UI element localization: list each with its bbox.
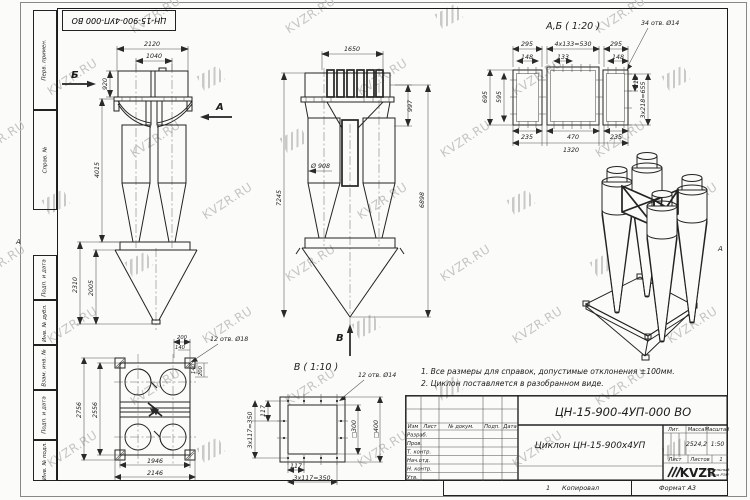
stamp-label: Инв. № дубл. [42, 304, 48, 342]
stamp-podp-data-2: Подп. и дата [33, 390, 57, 440]
view-plan: 2756 2556 1946 2146 200 140 140 200 12 о… [70, 326, 266, 498]
dim-side-920: 920 [102, 78, 109, 90]
dim-ab-3x218: 3x218=655 [640, 81, 647, 118]
dim-ab-133: 133 [557, 54, 569, 61]
dim-ab-148l: 148 [521, 54, 533, 61]
stamp-label: Взам. инв. № [42, 349, 48, 386]
dim-ab-4x133: 4x133=530 [554, 41, 591, 48]
bottom-strip-divider [631, 481, 632, 495]
tb-company-line2: завод РЭП [707, 472, 728, 477]
tb-doc-number: ЦН-15-900-4УП-000 ВО [555, 405, 691, 419]
title-block: Изм Лист № докум. Подп. Дата Разраб. Про… [405, 395, 728, 481]
dim-front-dia908: Ø 908 [310, 162, 330, 170]
tb-scale-value: 1:50 [711, 441, 725, 448]
note-ab-holes: 34 отв. Ø14 [641, 19, 679, 27]
tb-part-name: Циклон ЦН-15-900х4УП [535, 441, 646, 451]
dim-plan-140t: 140 [175, 345, 186, 351]
tb-sheet-label: Лист [667, 457, 682, 463]
dim-ab-295l: 295 [521, 41, 533, 48]
dim-side-2120: 2120 [144, 41, 160, 48]
dim-ab-595: 595 [496, 91, 503, 103]
side-view-labels: Б А [62, 70, 232, 120]
plan-geometry [115, 358, 195, 460]
dim-v-sq300: □300 [351, 420, 358, 438]
tb-mass-value: 2524,2 [686, 441, 707, 448]
iso-cyclone-front [647, 191, 677, 343]
stamp-label: Справ. № [42, 147, 48, 174]
note-v-holes: 12 отв. Ø14 [358, 371, 396, 379]
stamp-label: Перв. примен. [42, 39, 48, 80]
dim-side-1040: 1040 [146, 53, 162, 60]
tb-col-data: Дата [502, 424, 516, 430]
tb-scale-label: Масштаб [705, 427, 730, 433]
view-detail-v: В ( 1:10 ) 117 3x117=350 117 3x117=350 □… [246, 350, 418, 498]
dim-front-7245: 7245 [276, 190, 283, 206]
side-centerlines [136, 64, 172, 330]
tb-sheets-label: Листов [689, 457, 709, 463]
stamp-label: Подп. и дата [42, 396, 48, 433]
tb-sheets-value: 1 [719, 457, 722, 463]
copied-number: 1 [546, 484, 550, 492]
view-side: 2120 1040 920 4015 2310 2005 Б А [56, 36, 312, 336]
format-label: Формат А3 [659, 484, 696, 492]
tb-lit-label: Лит. [667, 427, 680, 433]
label-v: В [336, 333, 344, 344]
dim-plan-2756: 2756 [76, 402, 83, 418]
note-line-1: 1. Все размеры для справок, допустимые о… [421, 366, 727, 378]
stamp-vzam-inv: Взам. инв. № [33, 345, 57, 390]
dim-front-6898: 6898 [419, 192, 426, 208]
dim-front-1650: 1650 [344, 46, 360, 53]
dim-side-2310: 2310 [72, 277, 79, 293]
note-line-2: 2. Циклон поставляется в разобранном вид… [421, 378, 727, 390]
side-geometry [114, 68, 197, 324]
stamp-inv-dubl: Инв. № дубл. [33, 300, 57, 345]
dim-v-350b: 3x117=350 [293, 475, 330, 482]
dim-ab-695: 695 [482, 91, 489, 103]
tb-col-docum: № докум. [447, 424, 474, 430]
dim-v-350l: 3x117=350 [247, 411, 254, 448]
detail-v-title: В ( 1:10 ) [294, 362, 338, 373]
detail-ab-title: А,Б ( 1:20 ) [545, 21, 600, 32]
dim-ab-235l: 235 [521, 134, 533, 141]
dim-plan-1946: 1946 [147, 458, 163, 465]
stamp-perv-primen: Перв. примен. [33, 10, 57, 110]
dim-ab-148r: 148 [612, 54, 624, 61]
technical-notes: 1. Все размеры для справок, допустимые о… [421, 366, 727, 390]
dim-v-117l: 117 [260, 405, 267, 417]
stamp-inv-podl: Инв. № подл. [33, 440, 57, 481]
dim-front-997: 997 [407, 100, 414, 112]
dim-plan-200t: 200 [177, 335, 188, 341]
ab-geometry [510, 64, 632, 129]
dim-v-sq400: □400 [373, 420, 380, 438]
tb-row-prov: Пров. [407, 441, 422, 447]
stamp-label: Инв. № подл. [42, 442, 48, 480]
iso-cyclone-right [677, 175, 707, 324]
dim-plan-2146: 2146 [147, 470, 163, 477]
label-b: Б [71, 70, 79, 81]
dim-ab-295r: 295 [610, 41, 622, 48]
view-front: 1650 997 6898 7245 Ø 908 В [276, 40, 458, 370]
tb-row-razrab: Разраб. [407, 433, 427, 439]
stamp-podp-data-1: Подп. и дата [33, 255, 57, 300]
stamp-sprav-no: Справ. № [33, 110, 57, 210]
v-dimensions: 117 3x117=350 117 3x117=350 □300 □400 12… [247, 371, 396, 485]
doc-number-top-stamp: ЦН-15-900-4УП-000 ВО [62, 10, 176, 31]
view-isometric [550, 136, 742, 368]
tb-row-nachotd: Нач.отд. [407, 458, 430, 464]
front-centerlines [324, 68, 379, 332]
stamp-label: Подп. и дата [42, 259, 48, 296]
drawing-sheet: { "watermark": {"text": "KVZR.RU"}, "fra… [0, 0, 750, 500]
dim-plan-140r: 140 [191, 363, 197, 374]
tb-col-podp: Подп. [484, 424, 500, 430]
tb-row-utv: Утв. [407, 475, 418, 481]
dim-plan-200r: 200 [198, 365, 204, 376]
iso-base [583, 274, 697, 360]
note-plan-holes: 12 отв. Ø18 [210, 335, 248, 343]
v-geometry [277, 394, 348, 465]
copied-label: Копировал [562, 484, 599, 492]
tb-mass-label: Масса [688, 427, 705, 433]
tb-col-izm: Изм [408, 424, 419, 430]
bottom-strip: 1 Копировал Формат А3 [443, 481, 728, 496]
tb-row-tkontr: Т. контр. [407, 450, 431, 456]
dim-side-2005: 2005 [88, 280, 95, 296]
dim-ab-218: 218 [633, 76, 640, 88]
zone-mark-left: А [16, 238, 21, 246]
tb-row-nkontr: Н. контр. [407, 467, 432, 473]
ab-dimensions: 295 4x133=530 295 148 133 148 695 595 21… [482, 19, 679, 154]
dim-plan-2556: 2556 [92, 402, 99, 418]
tb-col-list: Лист [422, 424, 437, 430]
dim-side-4015: 4015 [94, 162, 101, 178]
doc-number-top-text: ЦН-15-900-4УП-000 ВО [72, 16, 167, 25]
title-block-texts: Изм Лист № докум. Подп. Дата Разраб. Про… [407, 405, 730, 481]
label-a: А [215, 102, 224, 113]
dim-v-117b: 117 [290, 463, 302, 470]
